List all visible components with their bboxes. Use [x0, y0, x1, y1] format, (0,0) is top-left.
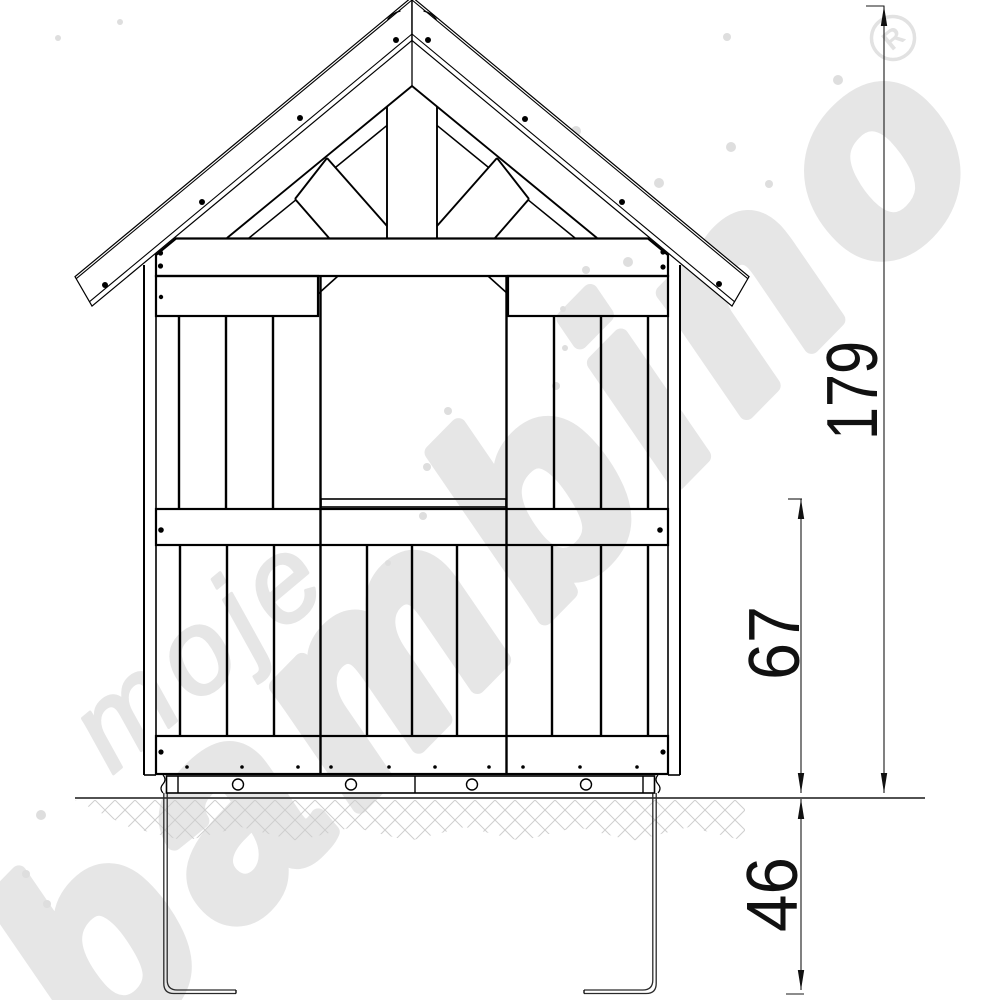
svg-text:46: 46: [733, 857, 813, 932]
svg-text:179: 179: [813, 341, 893, 440]
svg-text:67: 67: [735, 606, 815, 680]
